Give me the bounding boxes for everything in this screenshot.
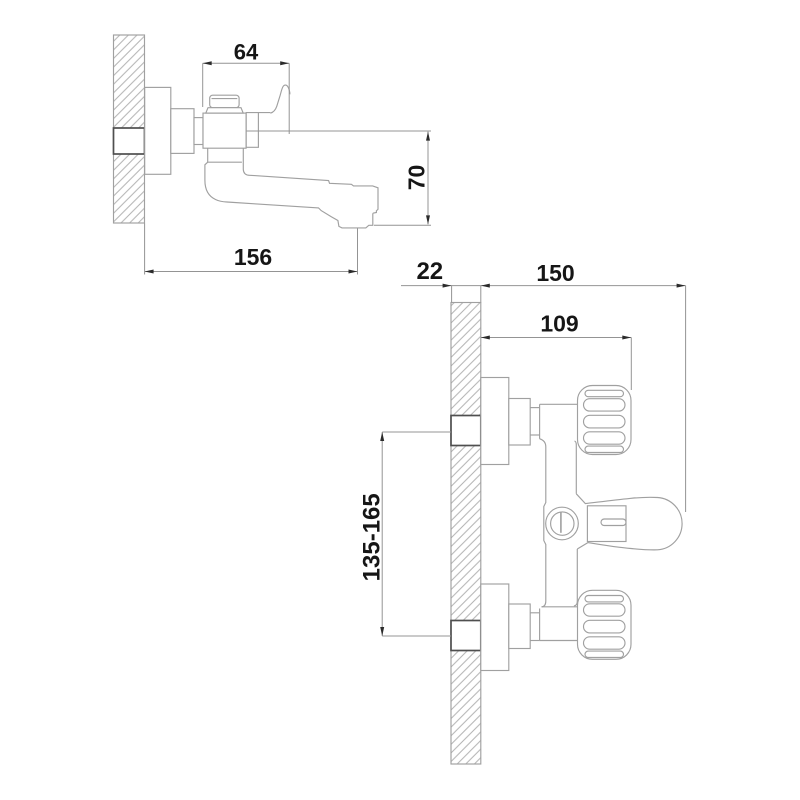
svg-text:70: 70 [403, 165, 429, 191]
svg-text:135-165: 135-165 [359, 493, 386, 581]
svg-text:150: 150 [536, 260, 574, 286]
svg-text:109: 109 [540, 310, 578, 336]
svg-text:64: 64 [234, 40, 259, 65]
svg-text:156: 156 [234, 244, 272, 270]
svg-text:22: 22 [416, 258, 443, 285]
